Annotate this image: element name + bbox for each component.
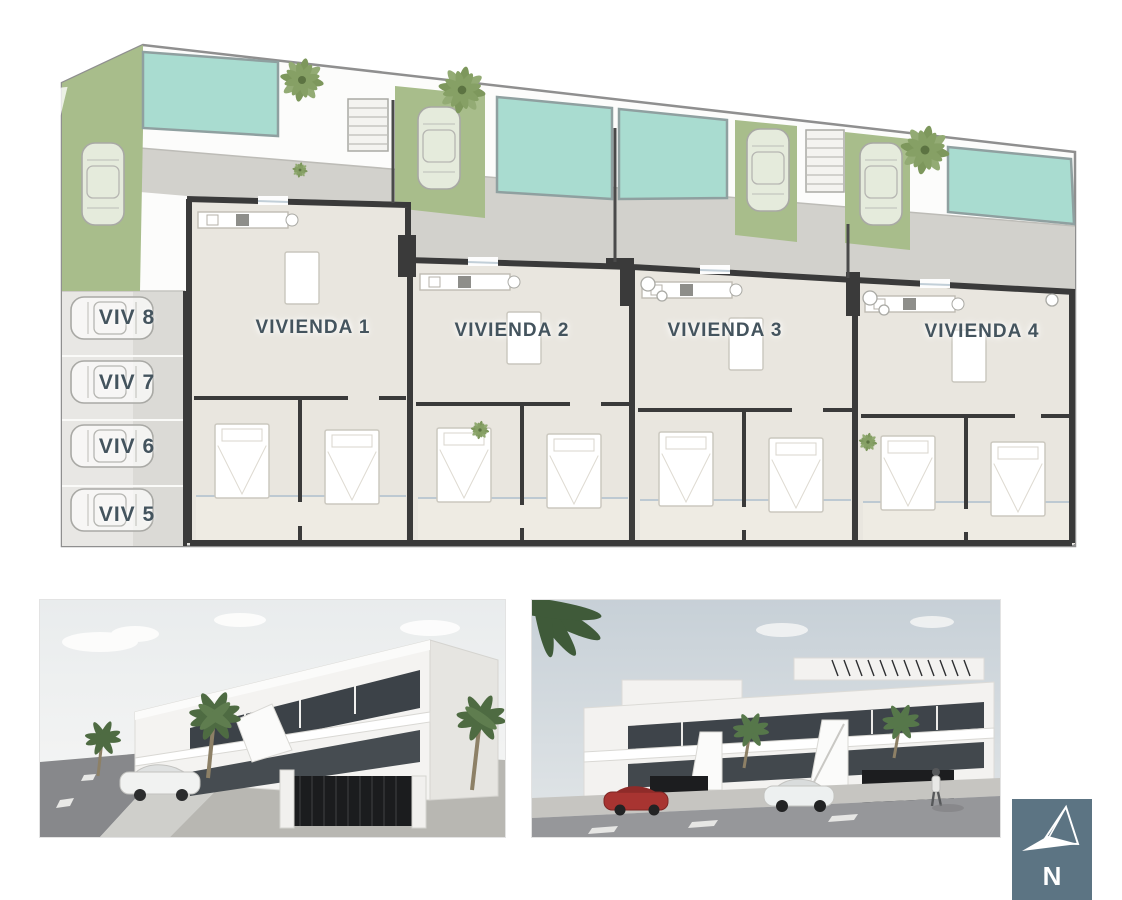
fence-pillar <box>280 770 294 828</box>
slat-fence <box>292 776 412 826</box>
parking-label-viv-5: VIV 5 <box>82 503 172 527</box>
pool-4 <box>948 147 1074 224</box>
building-exterior-corner-render <box>40 600 505 837</box>
exterior-render-left <box>40 600 505 837</box>
unit-label-vivienda-1: VIVIENDA 1 <box>228 317 398 339</box>
floor-plan: blanco reality VIVIENDA 1 VIVIENDA 2 VIV… <box>0 0 1122 580</box>
parking-label-viv-6: VIV 6 <box>82 435 172 459</box>
fence-pillar <box>412 776 426 828</box>
unit-label-vivienda-2: VIVIENDA 2 <box>427 320 597 342</box>
unit-label-vivienda-3: VIVIENDA 3 <box>640 320 810 342</box>
page-canvas: blanco reality VIVIENDA 1 VIVIENDA 2 VIV… <box>0 0 1122 900</box>
pool-3 <box>619 109 727 199</box>
exterior-render-right <box>532 600 1000 837</box>
building-exterior-street-render <box>532 600 1000 837</box>
north-compass: N <box>1012 799 1092 900</box>
north-label: N <box>1012 861 1092 892</box>
parking-label-viv-8: VIV 8 <box>82 306 172 330</box>
stairs-2 <box>806 130 844 192</box>
pool-1 <box>143 52 278 136</box>
stairs-1 <box>348 99 388 151</box>
unit-label-vivienda-4: VIVIENDA 4 <box>897 321 1067 343</box>
floor-plan-drawing <box>0 0 1122 580</box>
pool-2 <box>497 97 612 199</box>
parking-label-viv-7: VIV 7 <box>82 371 172 395</box>
north-arrow-icon <box>1012 799 1092 865</box>
